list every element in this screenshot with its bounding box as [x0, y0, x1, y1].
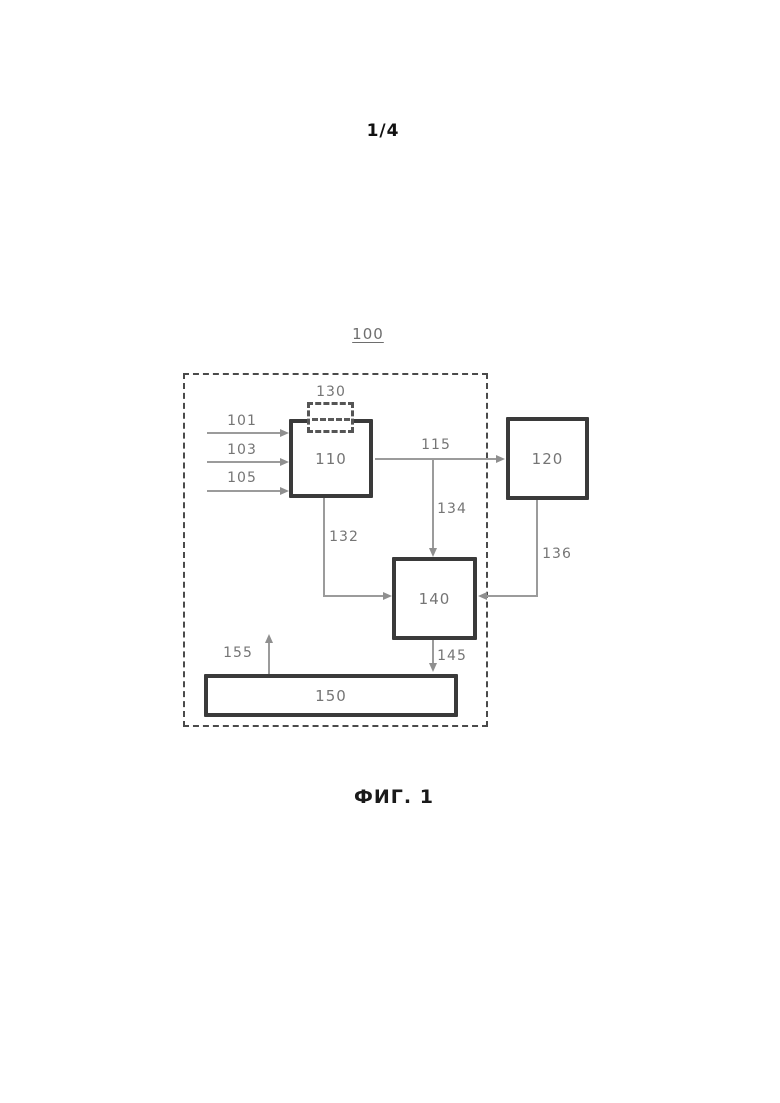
- signal-105-arrowhead: [280, 487, 289, 495]
- block-110-label: 110: [315, 450, 347, 468]
- signal-115-arrowhead: [496, 455, 505, 463]
- block-150-label: 150: [315, 687, 347, 705]
- signal-115-line: [375, 458, 497, 460]
- signal-101-arrowhead: [280, 429, 289, 437]
- block-120: 120: [506, 417, 589, 500]
- signal-132-line-vertical: [323, 498, 325, 597]
- signal-155-label: 155: [210, 645, 266, 661]
- signal-115-label: 115: [408, 437, 464, 453]
- system-reference-label: 100: [340, 325, 396, 343]
- signal-103-arrowhead: [280, 458, 289, 466]
- signal-155-arrowhead: [265, 634, 273, 643]
- block-110-hidden-edge: [312, 418, 350, 421]
- block-150: 150: [204, 674, 458, 717]
- signal-132-line-horizontal: [323, 595, 384, 597]
- signal-155-line: [268, 643, 270, 674]
- signal-134-label: 134: [424, 501, 480, 517]
- block-120-label: 120: [532, 450, 564, 468]
- signal-101-line: [207, 432, 281, 434]
- signal-145-arrowhead: [429, 663, 437, 672]
- signal-103-line: [207, 461, 281, 463]
- signal-136-line-horizontal: [487, 595, 538, 597]
- signal-105-label: 105: [214, 470, 270, 486]
- block-130-label: 130: [303, 384, 359, 400]
- block-140: 140: [392, 557, 477, 640]
- signal-145-label: 145: [424, 648, 480, 664]
- signal-105-line: [207, 490, 281, 492]
- signal-136-label: 136: [529, 546, 585, 562]
- signal-132-arrowhead: [383, 592, 392, 600]
- figure-caption: ФИГ. 1: [0, 786, 780, 808]
- signal-134-arrowhead: [429, 548, 437, 557]
- block-140-label: 140: [419, 590, 451, 608]
- signal-136-arrowhead: [478, 592, 487, 600]
- patent-drawing-sheet: 1/4 100 110 130 120 140 150 101 103 105 …: [0, 0, 780, 1103]
- signal-103-label: 103: [214, 442, 270, 458]
- signal-132-label: 132: [316, 529, 372, 545]
- signal-101-label: 101: [214, 413, 270, 429]
- sheet-number: 1/4: [0, 121, 766, 141]
